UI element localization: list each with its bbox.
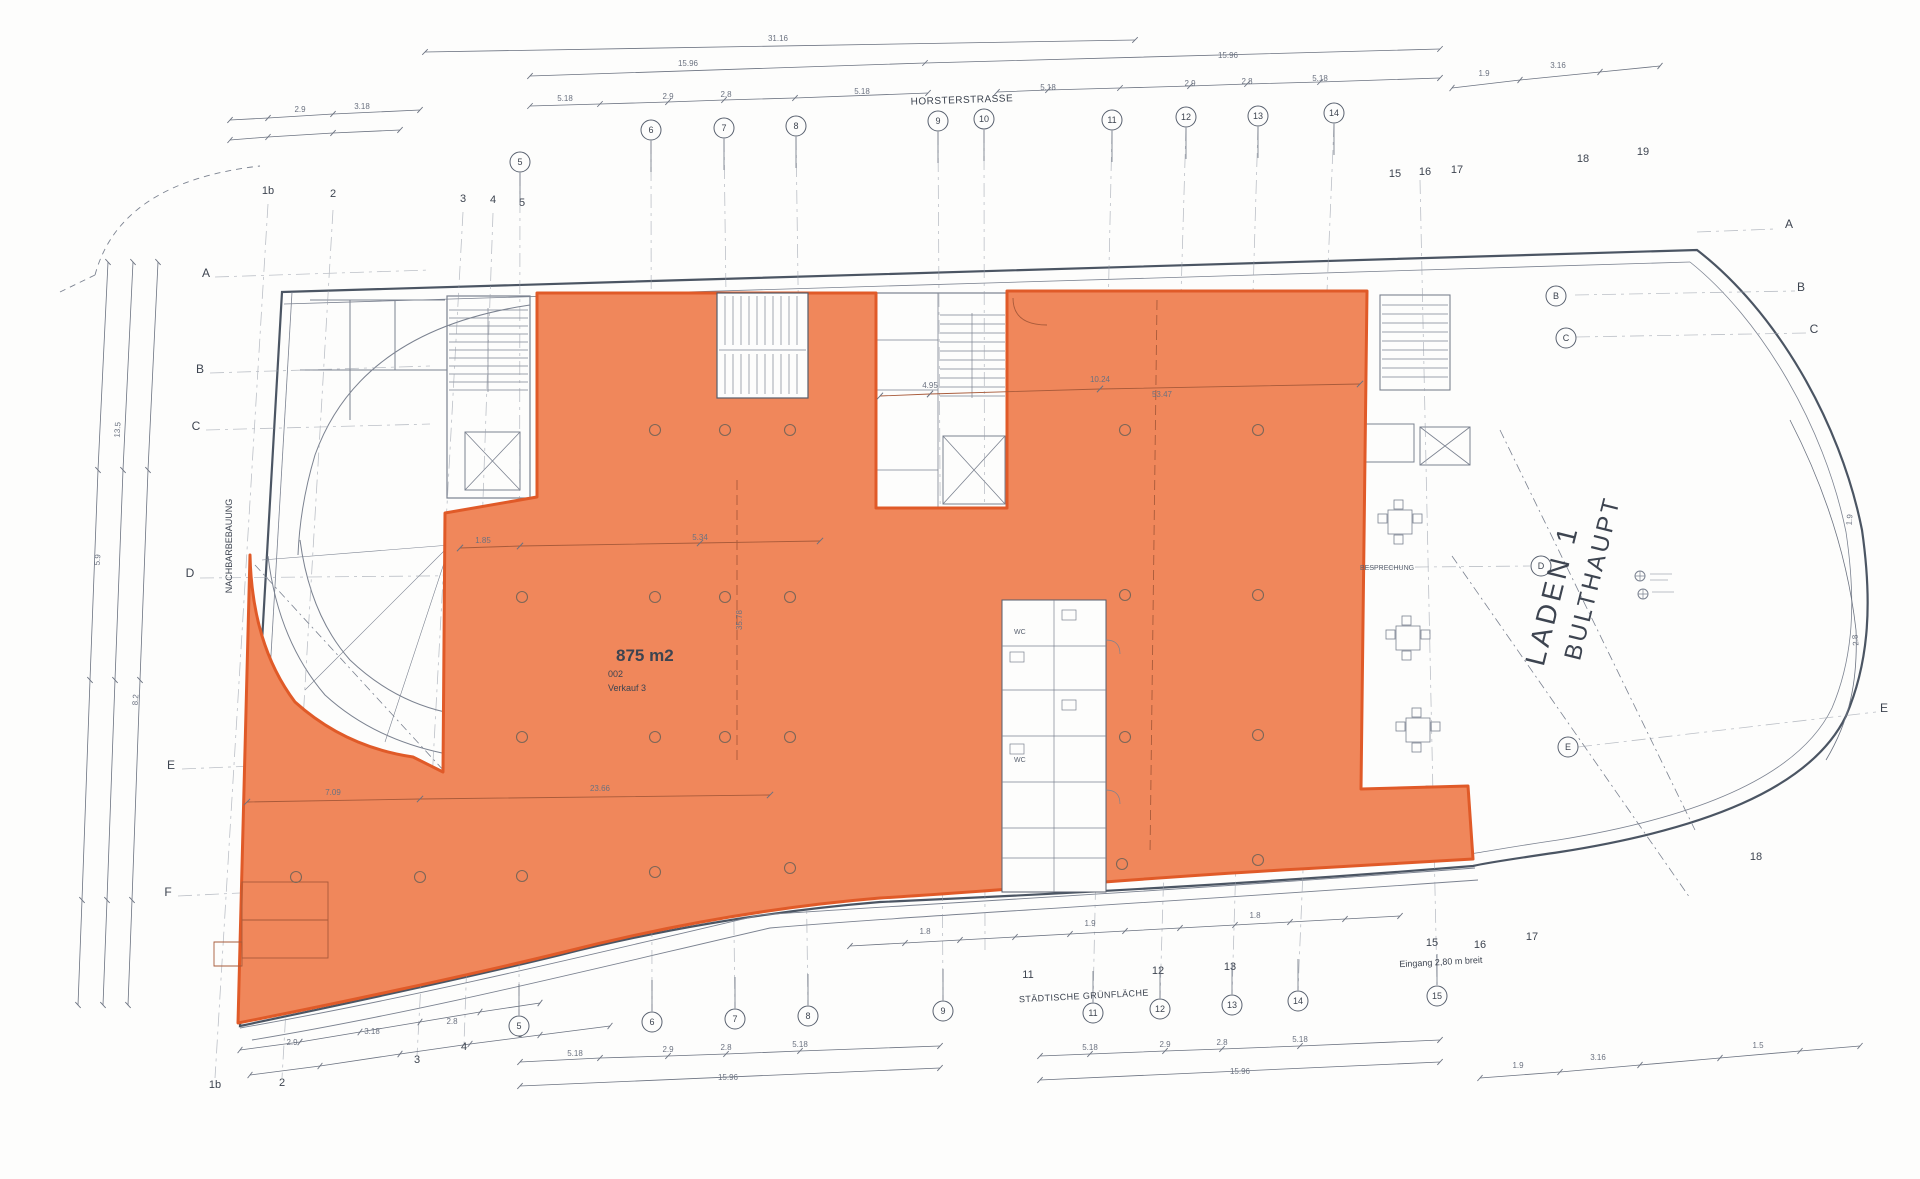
grid-number: 11 [1022, 969, 1033, 981]
room-label-meeting: BESPRECHUNG [1360, 565, 1414, 572]
grid-bubble-label: 10 [979, 114, 989, 124]
grid-bubble-label: B [1553, 291, 1559, 301]
grid-number: 18 [1577, 153, 1589, 165]
grid-bubble-label: 11 [1107, 115, 1116, 125]
grid-letter: B [196, 362, 204, 376]
grid-bubble-label: 6 [649, 1017, 654, 1027]
grid-letter: F [164, 885, 171, 899]
dim-label: 5.18 [854, 87, 870, 96]
grid-letter: D [186, 566, 195, 580]
grid-number: 1b [209, 1079, 221, 1091]
grid-bubble-label: 15 [1432, 991, 1442, 1001]
dim-label: 5.18 [792, 1040, 808, 1049]
grid-bubble-label: 12 [1181, 112, 1191, 122]
dim-label: 13.5 [112, 421, 122, 438]
dim-label: 2.8 [720, 90, 732, 99]
dim-label: 1.85 [475, 536, 491, 545]
grid-bubble-label: 13 [1227, 1000, 1237, 1010]
area-number-label: 002 [608, 669, 623, 679]
grid-number: 4 [461, 1041, 467, 1053]
grid-letter: E [1880, 701, 1888, 715]
grid-bubble-label: E [1565, 742, 1571, 752]
dim-label: 15.96 [1218, 51, 1239, 60]
grid-bubble-label: 5 [517, 157, 522, 167]
dim-label: 2.9 [286, 1038, 298, 1047]
dim-label: 2.8 [1216, 1038, 1228, 1047]
dim-label: 2.8 [446, 1017, 458, 1026]
grid-bubble-label: C [1563, 333, 1570, 343]
grid-bubble-label: 7 [732, 1014, 737, 1024]
grid-number: 15 [1389, 168, 1401, 180]
grid-letter: A [202, 266, 210, 280]
dim-label: 3.18 [364, 1027, 380, 1036]
grid-bubble-label: 13 [1253, 111, 1263, 121]
dim-label: 5.18 [1312, 74, 1328, 83]
grid-number: 15 [1426, 937, 1438, 949]
dim-label: 31.16 [768, 34, 789, 43]
dim-label: 15.96 [1230, 1067, 1251, 1076]
dim-label: 35.78 [735, 609, 744, 630]
grid-number: 2 [279, 1077, 285, 1089]
grid-number: 3 [460, 193, 466, 205]
stairwell-notch [717, 293, 808, 398]
street-top-label: HORSTERSTRASSE [910, 93, 1013, 108]
cafe-tables [1378, 500, 1454, 830]
grid-bubble-label: 11 [1088, 1008, 1097, 1018]
highlighted-area-875m2[interactable] [238, 291, 1473, 1023]
dim-label: 8.2 [131, 693, 141, 705]
dim-label: 10.24 [1090, 375, 1111, 384]
grid-number: 2 [330, 188, 336, 200]
area-use-label: Verkauf 3 [608, 683, 646, 693]
survey-symbols [1635, 571, 1674, 599]
grid-number: 16 [1474, 939, 1486, 951]
dim-label: 2.9 [662, 92, 674, 101]
dim-label: 1.9 [1478, 69, 1490, 78]
dim-label: 3.16 [1590, 1053, 1606, 1062]
entrance-note: Eingang 2,80 m breit [1399, 955, 1483, 969]
area-value-label: 875 m2 [616, 646, 674, 665]
dim-label: 2.8 [1850, 634, 1860, 646]
grid-bubble-label: 6 [648, 125, 653, 135]
grid-letter: C [1810, 322, 1819, 336]
dim-label: 2.9 [1159, 1040, 1171, 1049]
dim-label: 3.18 [354, 102, 370, 111]
room-label-wc1: WC [1014, 629, 1026, 636]
grid-letter: A [1785, 217, 1793, 231]
grid-bubble-label: 9 [935, 116, 940, 126]
dim-label: 2.9 [1184, 79, 1196, 88]
dim-label: 1.8 [1249, 911, 1261, 920]
dim-label: 1.9 [1084, 919, 1096, 928]
dim-label: 5.18 [567, 1049, 583, 1058]
dim-label: 5.18 [1040, 83, 1056, 92]
grid-number: 17 [1451, 164, 1463, 176]
dim-label: 1.5 [1752, 1041, 1764, 1050]
grid-number: 4 [490, 194, 496, 206]
dim-label: 2.9 [294, 105, 306, 114]
grid-bubble-label: 8 [793, 121, 798, 131]
grid-bubble-label: 14 [1293, 996, 1303, 1006]
dim-label: 1.8 [919, 927, 931, 936]
dim-label: 53.47 [1152, 390, 1173, 399]
dim-label: 5.18 [1292, 1035, 1308, 1044]
grid-bubble-label: 9 [940, 1006, 945, 1016]
dim-label: 3.16 [1550, 61, 1566, 70]
dim-label: 23.66 [590, 784, 611, 793]
grid-letter: B [1797, 280, 1805, 294]
dim-label: 4.95 [922, 381, 938, 390]
floor-plan-page: 1b234515161718191b234511121315161718ABCD… [0, 0, 1920, 1179]
grid-number: 19 [1637, 146, 1649, 158]
grid-number: 18 [1750, 851, 1762, 863]
dim-label: 2.8 [1241, 77, 1253, 86]
dim-label: 7.09 [325, 788, 341, 797]
dim-label: 15.96 [718, 1073, 739, 1082]
dim-label: 1.9 [1512, 1061, 1524, 1070]
grid-number: 12 [1152, 965, 1164, 977]
dim-label: 5.34 [692, 533, 708, 542]
room-label-wc2: WC [1014, 757, 1026, 764]
grid-bubble-label: 8 [805, 1011, 810, 1021]
grid-number: 3 [414, 1054, 420, 1066]
neighbor-left-label: NACHBARBEBAUUNG [224, 499, 234, 594]
dim-label: 1.9 [1845, 513, 1855, 525]
grid-bubble-label: 12 [1155, 1004, 1165, 1014]
dim-label: 2.9 [662, 1045, 674, 1054]
grid-letter: C [192, 419, 201, 433]
dim-label: 15.96 [678, 59, 699, 68]
grid-number: 13 [1224, 961, 1236, 973]
grid-number: 17 [1526, 931, 1538, 943]
stairwell-middle [876, 293, 1007, 508]
dim-label: 5.18 [1082, 1043, 1098, 1052]
grid-number: 16 [1419, 166, 1431, 178]
grid-bubble-label: 7 [721, 123, 726, 133]
street-bottom-label: STÄDTISCHE GRÜNFLÄCHE [1019, 988, 1149, 1005]
stairwell-right [1380, 295, 1450, 390]
dim-label: 2.8 [720, 1043, 732, 1052]
grid-bubble-label: 5 [516, 1021, 521, 1031]
grid-bubble-label: 14 [1329, 108, 1339, 118]
grid-number: 1b [262, 185, 274, 197]
dim-label: 5.18 [557, 94, 573, 103]
neighbor-outline-dashed [95, 166, 260, 275]
grid-letter: E [167, 758, 175, 772]
dim-label: 5.9 [93, 553, 103, 565]
floor-plan-canvas: 1b234515161718191b234511121315161718ABCD… [0, 0, 1920, 1179]
